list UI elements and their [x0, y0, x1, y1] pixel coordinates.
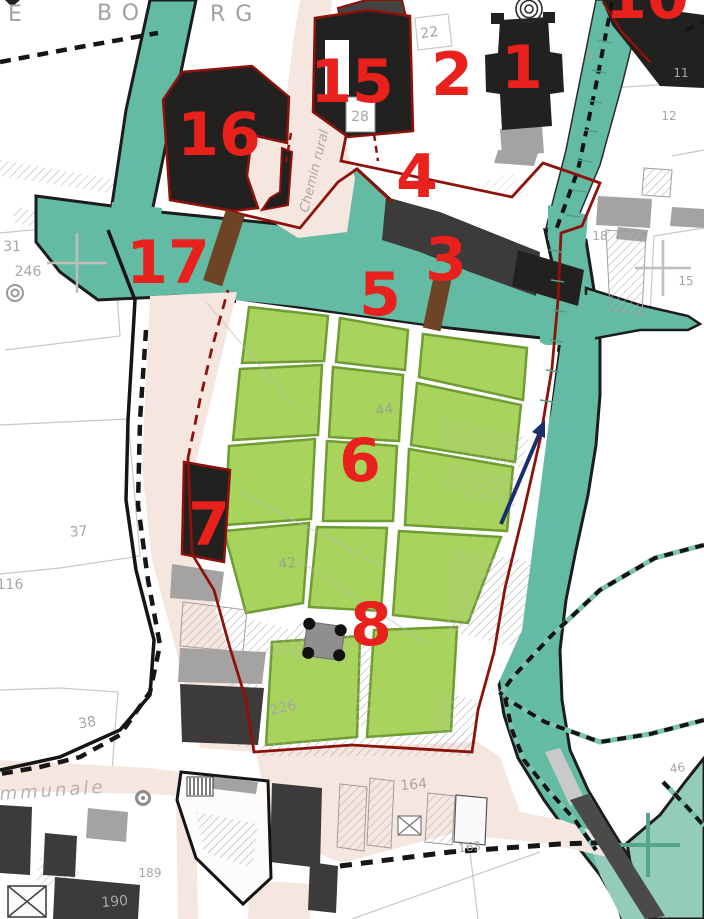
covered-passage-icon [187, 777, 213, 796]
parcel-number: 189 [139, 866, 162, 880]
site-marker-8: 8 [350, 590, 392, 660]
site-marker-15: 15 [310, 47, 394, 117]
parcel-number: 37 [69, 523, 88, 540]
parcel-number: 190 [101, 893, 129, 911]
site-marker-5: 5 [359, 260, 401, 330]
parcel-number: 9 [586, 49, 594, 63]
dashed-road-west [0, 330, 160, 774]
place-name-fragment: RG [210, 2, 262, 27]
ruin-cross-icon [398, 816, 421, 835]
parcel-number: 46 [669, 760, 686, 776]
parcel-number: 164 [400, 776, 428, 794]
site-marker-2: 2 [431, 40, 473, 110]
site-marker-3: 3 [425, 225, 467, 295]
parcel-number: 246 [15, 264, 42, 280]
parcel-number: 18 [592, 229, 607, 243]
parcel-number: 163 [457, 839, 481, 855]
map-canvas: E BO RG Chemin rural mmunale 22 28 9 11 … [0, 0, 704, 919]
parcel-number: 12 [661, 109, 676, 123]
parcel-number: 44 [375, 401, 395, 419]
parcel-number: 42 [278, 555, 298, 573]
ruin-cross-icon [8, 886, 46, 917]
site-marker-4: 4 [396, 142, 438, 212]
site-map: E BO RG Chemin rural mmunale 22 28 9 11 … [0, 0, 704, 919]
site-marker-1: 1 [501, 33, 543, 103]
parcel-number: 31 [3, 239, 21, 255]
well-icon [137, 792, 150, 805]
parcel-number: 15 [678, 274, 693, 288]
dashed-path-nw [0, 33, 158, 62]
parcel-number: 38 [77, 714, 97, 733]
well-icon [7, 285, 23, 301]
place-name-fragment: BO [97, 1, 149, 26]
site-marker-10: 10 [605, 0, 689, 33]
site-marker-16: 16 [177, 100, 261, 170]
parcel-number: 11 [673, 66, 688, 80]
white-building [454, 795, 487, 845]
site-marker-7: 7 [188, 490, 230, 560]
site-marker-17: 17 [126, 228, 210, 298]
parcel-number: 116 [0, 577, 23, 593]
place-name-fragment: E [8, 2, 32, 27]
site-marker-6: 6 [339, 426, 381, 496]
